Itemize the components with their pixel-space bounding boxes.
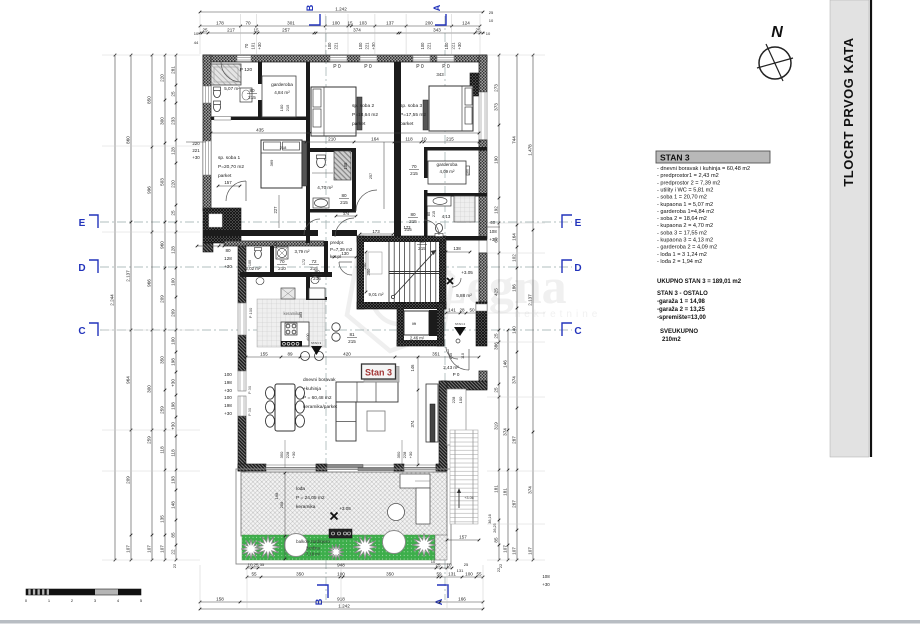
svg-text:215: 215 bbox=[449, 353, 453, 359]
svg-text:+30: +30 bbox=[542, 582, 550, 587]
svg-text:300: 300 bbox=[160, 117, 165, 125]
svg-text:P 0: P 0 bbox=[333, 64, 341, 70]
svg-text:209: 209 bbox=[160, 295, 165, 303]
svg-text:81: 81 bbox=[349, 332, 355, 337]
svg-text:dnevni boravak: dnevni boravak bbox=[303, 377, 336, 383]
svg-text:319: 319 bbox=[494, 422, 499, 430]
svg-text:148: 148 bbox=[171, 501, 176, 509]
svg-text:C: C bbox=[78, 326, 85, 337]
svg-text:sp. soba 1: sp. soba 1 bbox=[218, 155, 240, 161]
svg-text:221: 221 bbox=[364, 42, 369, 50]
svg-text:363: 363 bbox=[299, 312, 303, 318]
svg-text:keramika/parket: keramika/parket bbox=[303, 404, 338, 410]
svg-text:257: 257 bbox=[369, 173, 373, 179]
svg-text:158: 158 bbox=[216, 597, 224, 602]
svg-text:10: 10 bbox=[194, 31, 199, 36]
svg-text:70: 70 bbox=[244, 43, 249, 48]
svg-text:C: C bbox=[574, 326, 581, 337]
svg-text:22: 22 bbox=[496, 567, 501, 572]
svg-text:100: 100 bbox=[444, 42, 449, 50]
svg-text:100: 100 bbox=[358, 42, 363, 50]
svg-text:10: 10 bbox=[421, 137, 427, 142]
svg-text:STAN 3: STAN 3 bbox=[660, 153, 690, 163]
svg-text:72: 72 bbox=[311, 259, 317, 264]
svg-text:221: 221 bbox=[333, 42, 338, 50]
svg-text:146: 146 bbox=[503, 360, 508, 368]
svg-text:80: 80 bbox=[419, 239, 425, 244]
svg-text:107: 107 bbox=[528, 547, 533, 555]
svg-text:44: 44 bbox=[194, 40, 199, 45]
svg-text:25: 25 bbox=[171, 91, 176, 97]
svg-text:996: 996 bbox=[147, 186, 152, 194]
svg-text:2,02 m²: 2,02 m² bbox=[246, 266, 261, 271]
svg-text:97: 97 bbox=[205, 242, 209, 246]
svg-text:374: 374 bbox=[512, 376, 517, 384]
svg-text:+30: +30 bbox=[457, 42, 462, 50]
svg-text:155: 155 bbox=[260, 352, 268, 357]
svg-text:- soba 3 = 17,55 m2: - soba 3 = 17,55 m2 bbox=[657, 230, 707, 236]
svg-text:keramika: keramika bbox=[296, 504, 316, 510]
svg-text:85: 85 bbox=[171, 532, 176, 538]
svg-text:192: 192 bbox=[494, 206, 499, 214]
svg-text:350: 350 bbox=[279, 451, 284, 458]
svg-text:+30: +30 bbox=[224, 388, 232, 393]
svg-text:301: 301 bbox=[287, 21, 295, 26]
svg-text:107: 107 bbox=[126, 545, 131, 553]
svg-text:198: 198 bbox=[224, 403, 232, 408]
svg-text:- dnevni boravak i kuhinja = 6: - dnevni boravak i kuhinja = 60,48 m2 bbox=[657, 166, 750, 172]
svg-text:59: 59 bbox=[436, 572, 442, 577]
svg-text:124: 124 bbox=[462, 21, 470, 26]
svg-text:374: 374 bbox=[503, 428, 508, 436]
svg-text:nekretnine: nekretnine bbox=[515, 309, 602, 320]
svg-text:960: 960 bbox=[160, 241, 165, 249]
svg-text:350: 350 bbox=[296, 572, 304, 577]
svg-text:128: 128 bbox=[224, 256, 232, 261]
svg-text:lođa: lođa bbox=[296, 486, 305, 492]
svg-text:15: 15 bbox=[347, 21, 353, 26]
svg-text:215: 215 bbox=[248, 95, 256, 100]
svg-text:25: 25 bbox=[494, 333, 499, 339]
svg-text:118: 118 bbox=[160, 446, 165, 454]
svg-text:B: B bbox=[305, 4, 315, 11]
svg-text:P 0: P 0 bbox=[442, 64, 450, 70]
svg-text:+30: +30 bbox=[224, 411, 232, 416]
svg-text:350: 350 bbox=[386, 572, 394, 577]
svg-text:- predprostor1 = 2,43 m2: - predprostor1 = 2,43 m2 bbox=[657, 173, 719, 179]
svg-text:386: 386 bbox=[494, 342, 499, 350]
svg-text:128: 128 bbox=[171, 147, 176, 155]
svg-text:- garderoba 1=4,84 m2: - garderoba 1=4,84 m2 bbox=[657, 209, 714, 215]
svg-text:860: 860 bbox=[126, 136, 131, 144]
svg-text:Stan 3: Stan 3 bbox=[365, 368, 392, 378]
svg-text:80: 80 bbox=[427, 212, 431, 216]
svg-text:25: 25 bbox=[253, 563, 259, 568]
svg-text:10: 10 bbox=[431, 559, 436, 564]
svg-text:2,46 m²: 2,46 m² bbox=[410, 336, 425, 341]
svg-text:22: 22 bbox=[172, 563, 177, 568]
svg-text:351: 351 bbox=[432, 352, 440, 357]
svg-text:215: 215 bbox=[410, 171, 418, 176]
svg-text:287: 287 bbox=[512, 500, 517, 508]
svg-text:198: 198 bbox=[171, 358, 176, 366]
svg-text:25: 25 bbox=[489, 10, 494, 15]
svg-text:131: 131 bbox=[448, 572, 456, 577]
svg-text:100: 100 bbox=[224, 395, 232, 400]
svg-text:215: 215 bbox=[409, 219, 417, 224]
svg-text:10: 10 bbox=[446, 563, 452, 568]
svg-text:SVEUKUPNO: SVEUKUPNO bbox=[660, 329, 698, 335]
svg-text:1.478: 1.478 bbox=[528, 144, 533, 156]
svg-text:100: 100 bbox=[327, 42, 332, 50]
svg-text:287: 287 bbox=[512, 436, 517, 444]
svg-text:100: 100 bbox=[171, 278, 176, 286]
svg-text:4,09 m²: 4,09 m² bbox=[440, 169, 455, 174]
svg-text:215: 215 bbox=[418, 246, 426, 251]
svg-text:sp. soba 2: sp. soba 2 bbox=[352, 103, 374, 109]
svg-text:181: 181 bbox=[503, 488, 508, 496]
svg-text:130: 130 bbox=[341, 251, 349, 256]
svg-text:420: 420 bbox=[343, 352, 351, 357]
svg-text:80: 80 bbox=[249, 88, 255, 93]
svg-text:210m2: 210m2 bbox=[662, 337, 681, 343]
svg-text:100: 100 bbox=[465, 572, 473, 577]
svg-text:P 30: P 30 bbox=[247, 407, 252, 416]
svg-text:parket: parket bbox=[352, 121, 366, 127]
svg-text:garderoba: garderoba bbox=[271, 82, 293, 88]
svg-text:101: 101 bbox=[250, 42, 255, 50]
svg-text:+30: +30 bbox=[171, 422, 176, 430]
svg-text:70: 70 bbox=[245, 21, 251, 26]
svg-text:964: 964 bbox=[126, 376, 131, 384]
svg-text:5,07 m²: 5,07 m² bbox=[224, 86, 240, 91]
svg-text:210: 210 bbox=[328, 137, 336, 142]
svg-text:+3.05: +3.05 bbox=[339, 506, 351, 511]
svg-text:- predprostor 2 = 7,39 m2: - predprostor 2 = 7,39 m2 bbox=[657, 180, 720, 186]
svg-text:- kupaona 1 = 5,07 m2: - kupaona 1 = 5,07 m2 bbox=[657, 202, 713, 208]
svg-text:89: 89 bbox=[287, 352, 293, 357]
svg-text:164: 164 bbox=[512, 233, 517, 241]
svg-text:70: 70 bbox=[279, 259, 285, 264]
svg-text:137: 137 bbox=[386, 21, 394, 26]
svg-text:d 00: d 00 bbox=[306, 334, 310, 341]
svg-text:374: 374 bbox=[410, 420, 415, 428]
svg-text:373: 373 bbox=[494, 103, 499, 111]
svg-text:STAN 2: STAN 2 bbox=[455, 322, 466, 326]
svg-text:P 120: P 120 bbox=[240, 67, 253, 73]
svg-text:215: 215 bbox=[446, 137, 454, 142]
svg-text:+3.05: +3.05 bbox=[461, 270, 473, 275]
svg-text:228: 228 bbox=[285, 451, 290, 458]
svg-text:227: 227 bbox=[273, 206, 278, 214]
svg-text:374: 374 bbox=[343, 212, 349, 216]
svg-text:374: 374 bbox=[528, 486, 533, 494]
svg-text:163: 163 bbox=[273, 241, 278, 249]
svg-text:173: 173 bbox=[404, 225, 412, 230]
svg-text:215: 215 bbox=[340, 200, 348, 205]
svg-text:218: 218 bbox=[280, 145, 287, 150]
svg-text:85: 85 bbox=[494, 537, 499, 543]
svg-text:180: 180 bbox=[466, 169, 470, 175]
svg-text:850: 850 bbox=[147, 96, 152, 104]
svg-text:374: 374 bbox=[353, 28, 361, 33]
svg-text:+30: +30 bbox=[224, 264, 232, 269]
svg-text:100: 100 bbox=[171, 337, 176, 345]
svg-text:35: 35 bbox=[260, 562, 265, 567]
svg-text:2,43 m²: 2,43 m² bbox=[443, 365, 459, 370]
svg-text:220: 220 bbox=[160, 74, 165, 82]
svg-text:198: 198 bbox=[171, 402, 176, 410]
svg-text:146: 146 bbox=[410, 364, 415, 372]
svg-text:172: 172 bbox=[302, 259, 306, 265]
svg-text:173: 173 bbox=[372, 229, 380, 234]
svg-text:3,79 m²: 3,79 m² bbox=[295, 249, 310, 254]
svg-text:100: 100 bbox=[224, 372, 232, 377]
svg-text:215: 215 bbox=[432, 211, 436, 217]
svg-text:1.242: 1.242 bbox=[335, 7, 347, 12]
svg-text:+30: +30 bbox=[257, 42, 262, 50]
svg-text:108: 108 bbox=[343, 162, 348, 170]
svg-text:25: 25 bbox=[171, 210, 176, 216]
svg-text:N: N bbox=[771, 24, 783, 41]
svg-text:103: 103 bbox=[359, 21, 367, 26]
svg-text:P 0: P 0 bbox=[416, 64, 424, 70]
svg-text:100: 100 bbox=[332, 21, 340, 26]
svg-text:215: 215 bbox=[348, 339, 356, 344]
svg-text:- lođa 2 = 1,94 m2: - lođa 2 = 1,94 m2 bbox=[657, 259, 702, 265]
svg-text:28: 28 bbox=[459, 308, 465, 313]
svg-text:TLOCRT PRVOG KATA: TLOCRT PRVOG KATA bbox=[841, 37, 856, 186]
svg-text:D: D bbox=[78, 263, 85, 274]
svg-text:221: 221 bbox=[450, 42, 455, 50]
svg-text:Legna: Legna bbox=[433, 258, 566, 314]
svg-text:118: 118 bbox=[171, 449, 176, 457]
svg-text:215: 215 bbox=[313, 276, 321, 281]
svg-text:+30: +30 bbox=[192, 155, 200, 160]
svg-text:-spremište=13,00: -spremište=13,00 bbox=[657, 315, 707, 321]
svg-text:948: 948 bbox=[337, 563, 345, 568]
svg-text:2.244: 2.244 bbox=[110, 294, 115, 306]
svg-text:108: 108 bbox=[489, 229, 497, 234]
svg-text:250: 250 bbox=[362, 262, 367, 270]
svg-text:131: 131 bbox=[457, 568, 464, 573]
svg-text:217: 217 bbox=[227, 28, 235, 33]
svg-text:22: 22 bbox=[171, 549, 176, 555]
svg-text:E: E bbox=[575, 218, 582, 229]
svg-text:predpr.: predpr. bbox=[330, 240, 344, 245]
svg-text:228: 228 bbox=[451, 396, 456, 403]
svg-text:25: 25 bbox=[494, 387, 499, 393]
svg-text:258: 258 bbox=[279, 501, 284, 508]
svg-text:164: 164 bbox=[371, 137, 379, 142]
svg-text:108: 108 bbox=[542, 574, 550, 579]
svg-text:141: 141 bbox=[448, 308, 456, 313]
svg-text:+30: +30 bbox=[171, 379, 176, 387]
svg-text:100: 100 bbox=[279, 104, 284, 111]
svg-text:190: 190 bbox=[494, 156, 499, 164]
svg-text:7,18 m²: 7,18 m² bbox=[306, 552, 321, 557]
svg-text:209: 209 bbox=[171, 309, 176, 317]
svg-text:118: 118 bbox=[405, 137, 413, 142]
svg-text:138: 138 bbox=[453, 246, 461, 251]
svg-text:157: 157 bbox=[459, 535, 467, 540]
svg-text:135: 135 bbox=[160, 515, 165, 523]
svg-text:55: 55 bbox=[476, 572, 482, 577]
svg-text:4,13: 4,13 bbox=[442, 214, 451, 219]
svg-text:744: 744 bbox=[512, 136, 517, 144]
svg-text:10: 10 bbox=[486, 31, 491, 36]
svg-text:343: 343 bbox=[436, 72, 444, 77]
svg-text:110: 110 bbox=[461, 353, 465, 359]
svg-text:P = 60,48 m2: P = 60,48 m2 bbox=[303, 395, 332, 401]
svg-text:281: 281 bbox=[171, 66, 176, 74]
svg-text:259: 259 bbox=[160, 406, 165, 414]
svg-text:80: 80 bbox=[341, 193, 347, 198]
svg-text:210: 210 bbox=[278, 266, 286, 271]
svg-text:128: 128 bbox=[171, 246, 176, 254]
svg-text:-garaža 2 = 13,25: -garaža 2 = 13,25 bbox=[657, 307, 706, 313]
svg-text:90: 90 bbox=[314, 269, 320, 274]
svg-text:100: 100 bbox=[458, 396, 463, 403]
svg-text:+30: +30 bbox=[408, 451, 413, 459]
svg-text:220: 220 bbox=[171, 180, 176, 188]
svg-text:- soba 1 = 20,70 m2: - soba 1 = 20,70 m2 bbox=[657, 195, 707, 201]
svg-text:+30: +30 bbox=[291, 451, 296, 459]
svg-text:9,01 m²: 9,01 m² bbox=[369, 292, 384, 297]
svg-text:garderoba: garderoba bbox=[437, 162, 458, 167]
svg-text:STAN 3: STAN 3 bbox=[311, 341, 322, 345]
svg-text:80: 80 bbox=[225, 248, 231, 253]
svg-text:350: 350 bbox=[160, 356, 165, 364]
svg-text:140: 140 bbox=[512, 326, 517, 334]
svg-text:P=17,55 m2: P=17,55 m2 bbox=[400, 112, 426, 118]
svg-text:166: 166 bbox=[458, 597, 466, 602]
svg-text:15: 15 bbox=[253, 28, 259, 33]
svg-text:107: 107 bbox=[503, 545, 508, 553]
svg-text:parket: parket bbox=[218, 173, 232, 179]
svg-text:107: 107 bbox=[147, 545, 152, 553]
svg-text:+kuhinja: +kuhinja bbox=[303, 386, 321, 392]
svg-text:5,88 m²: 5,88 m² bbox=[456, 293, 472, 298]
svg-text:1.242: 1.242 bbox=[338, 604, 350, 609]
svg-text:215: 215 bbox=[285, 104, 290, 111]
svg-text:503: 503 bbox=[160, 178, 165, 186]
svg-text:4,70 m²: 4,70 m² bbox=[317, 185, 333, 190]
svg-text:A: A bbox=[432, 4, 442, 11]
svg-text:UKUPNO STAN 3 = 189,01 m2: UKUPNO STAN 3 = 189,01 m2 bbox=[657, 279, 742, 285]
svg-text:STAN 3 - OSTALO: STAN 3 - OSTALO bbox=[657, 291, 708, 297]
svg-text:369: 369 bbox=[269, 159, 274, 166]
svg-text:D: D bbox=[574, 263, 581, 274]
svg-text:-garaža 1 = 14,98: -garaža 1 = 14,98 bbox=[657, 299, 706, 305]
svg-text:228: 228 bbox=[402, 451, 407, 458]
svg-text:- soba 2 = 18,64 m2: - soba 2 = 18,64 m2 bbox=[657, 216, 707, 222]
svg-text:sp. soba 3: sp. soba 3 bbox=[400, 103, 422, 109]
svg-text:E: E bbox=[79, 218, 86, 229]
svg-text:178: 178 bbox=[216, 21, 224, 26]
svg-text:100: 100 bbox=[420, 42, 425, 50]
svg-text:300: 300 bbox=[147, 385, 152, 393]
svg-text:181: 181 bbox=[494, 485, 499, 493]
svg-text:P=18,64 m2: P=18,64 m2 bbox=[352, 112, 378, 118]
svg-text:425: 425 bbox=[494, 288, 499, 296]
svg-text:P=20,70 m2: P=20,70 m2 bbox=[218, 164, 244, 170]
svg-text:157: 157 bbox=[224, 180, 232, 185]
svg-text:193: 193 bbox=[171, 476, 176, 484]
svg-text:209: 209 bbox=[126, 476, 131, 484]
svg-text:10: 10 bbox=[219, 242, 223, 246]
svg-text:273: 273 bbox=[494, 84, 499, 92]
svg-text:+3.06: +3.06 bbox=[464, 496, 474, 500]
svg-text:P 100: P 100 bbox=[248, 307, 253, 318]
svg-text:435: 435 bbox=[256, 128, 264, 133]
svg-text:233: 233 bbox=[171, 117, 176, 125]
svg-text:198: 198 bbox=[224, 380, 232, 385]
svg-text:221: 221 bbox=[192, 148, 200, 153]
svg-text:ker.pl: ker.pl bbox=[330, 254, 341, 259]
svg-text:- kupaona 2 = 4,70 m2: - kupaona 2 = 4,70 m2 bbox=[657, 223, 713, 229]
svg-text:70: 70 bbox=[411, 164, 417, 169]
svg-text:2.137: 2.137 bbox=[126, 270, 131, 282]
svg-text:P 0: P 0 bbox=[364, 64, 372, 70]
svg-text:+30: +30 bbox=[489, 237, 497, 242]
svg-text:žardina: žardina bbox=[306, 546, 320, 551]
svg-text:4,84 m²: 4,84 m² bbox=[274, 90, 290, 95]
svg-text:balkon-zardinjera: balkon-zardinjera bbox=[296, 539, 330, 544]
svg-text:918: 918 bbox=[337, 597, 345, 602]
svg-text:36,16: 36,16 bbox=[488, 514, 492, 524]
svg-text:966: 966 bbox=[147, 279, 152, 287]
svg-text:10: 10 bbox=[489, 18, 494, 23]
svg-text:- garderoba 2 = 4,09 m2: - garderoba 2 = 4,09 m2 bbox=[657, 245, 717, 251]
svg-text:- kupaona 3 = 4,13 m2: - kupaona 3 = 4,13 m2 bbox=[657, 238, 713, 244]
svg-text:107: 107 bbox=[160, 545, 165, 553]
svg-text:198: 198 bbox=[274, 492, 279, 499]
svg-text:221: 221 bbox=[426, 42, 431, 50]
svg-text:200: 200 bbox=[425, 21, 433, 26]
svg-text:50: 50 bbox=[469, 308, 475, 313]
svg-text:- lođa 1 = 3 1,24 m2: - lođa 1 = 3 1,24 m2 bbox=[657, 252, 707, 258]
svg-text:26,25: 26,25 bbox=[493, 523, 497, 533]
svg-text:186: 186 bbox=[512, 284, 517, 292]
svg-text:P 30: P 30 bbox=[247, 385, 252, 394]
svg-text:25: 25 bbox=[464, 562, 469, 567]
svg-text:2.137: 2.137 bbox=[528, 294, 533, 306]
svg-text:22: 22 bbox=[498, 563, 503, 568]
svg-text:259: 259 bbox=[147, 436, 152, 444]
svg-text:343: 343 bbox=[433, 28, 441, 33]
svg-text:P = 24,05 m2: P = 24,05 m2 bbox=[296, 495, 325, 501]
svg-text:- utility i WC = 5,81 m2: - utility i WC = 5,81 m2 bbox=[657, 187, 713, 193]
svg-text:102: 102 bbox=[512, 254, 517, 262]
svg-text:100: 100 bbox=[337, 572, 345, 577]
svg-text:80: 80 bbox=[410, 212, 416, 217]
svg-text:350: 350 bbox=[396, 451, 401, 458]
svg-text:107: 107 bbox=[512, 547, 517, 555]
svg-text:-60: -60 bbox=[489, 220, 496, 225]
svg-text:257: 257 bbox=[282, 28, 290, 33]
svg-text:parket: parket bbox=[400, 121, 414, 127]
svg-text:25: 25 bbox=[202, 28, 208, 33]
svg-text:25: 25 bbox=[435, 563, 441, 568]
svg-text:P 0: P 0 bbox=[453, 372, 460, 377]
svg-text:10: 10 bbox=[247, 563, 253, 568]
svg-text:55: 55 bbox=[251, 572, 257, 577]
